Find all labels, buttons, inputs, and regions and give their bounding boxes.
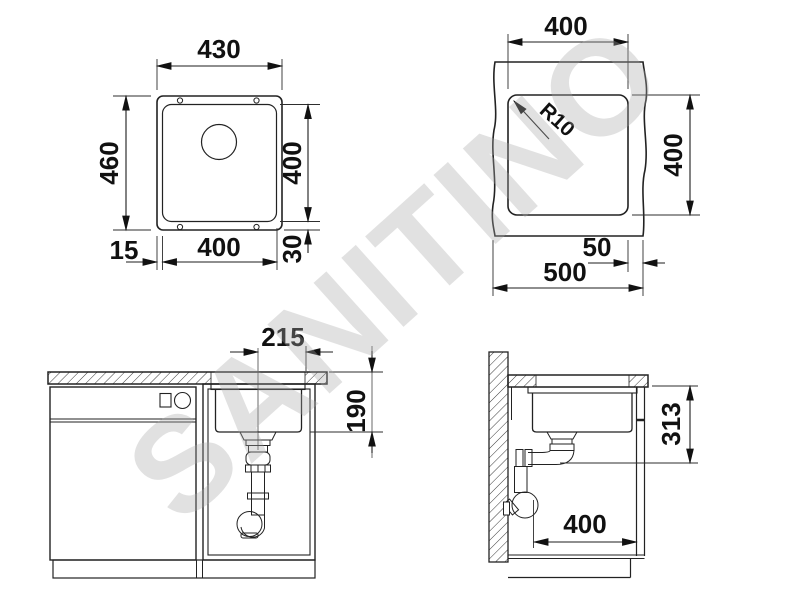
plinth [53, 560, 315, 578]
dim-overall-depth: 460 [94, 141, 124, 184]
sink-rim-side [528, 387, 637, 393]
technical-drawing-canvas: 430 460 400 30 15 400 R10 400 [0, 0, 800, 600]
dim-edge-distance: 50 [583, 232, 612, 262]
sink-bowl-outline [163, 105, 277, 222]
watermark-text: SANITINO [99, 0, 691, 549]
drain-hole [202, 125, 237, 160]
dim-mount-depth: 313 [656, 402, 686, 445]
wall-hatch [489, 352, 508, 562]
dim-edge-left: 15 [110, 235, 139, 265]
countertop-hatch [629, 375, 648, 387]
siphon-side [503, 432, 577, 518]
mount-hole [177, 98, 182, 103]
sink-bowl-side [533, 393, 633, 432]
top-view-drawing: 430 460 400 30 15 400 [94, 34, 320, 270]
dim-bowl-depth: 400 [277, 141, 307, 184]
dim-bowl-width: 400 [197, 232, 240, 262]
sink-outer-outline [157, 96, 282, 230]
mount-hole [254, 224, 259, 229]
dim-cutout-depth: 400 [658, 133, 688, 176]
mount-hole [177, 224, 182, 229]
dim-overall-width: 430 [197, 34, 240, 64]
mount-hole [254, 98, 259, 103]
dim-base-depth: 400 [563, 509, 606, 539]
dim-cabinet-width: 500 [543, 257, 586, 287]
side-view-drawing: 313 400 [489, 352, 698, 578]
countertop-hatch [508, 375, 536, 387]
